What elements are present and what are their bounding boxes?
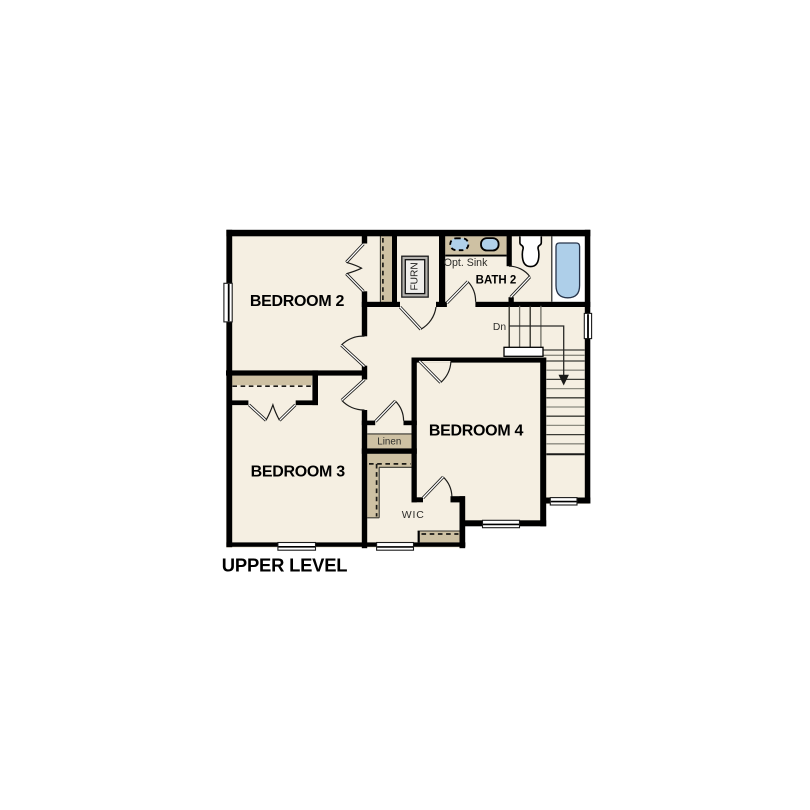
svg-text:BATH 2: BATH 2 <box>476 274 517 286</box>
svg-text:BEDROOM 4: BEDROOM 4 <box>429 423 524 440</box>
svg-text:FURN: FURN <box>409 262 420 290</box>
svg-text:BEDROOM 3: BEDROOM 3 <box>251 464 346 481</box>
svg-text:UPPER LEVEL: UPPER LEVEL <box>222 555 348 576</box>
svg-text:BEDROOM 2: BEDROOM 2 <box>250 293 345 310</box>
svg-text:Dn: Dn <box>493 322 506 333</box>
svg-text:WIC: WIC <box>402 509 425 521</box>
svg-text:Opt. Sink: Opt. Sink <box>444 257 488 269</box>
svg-text:Linen: Linen <box>377 436 401 447</box>
